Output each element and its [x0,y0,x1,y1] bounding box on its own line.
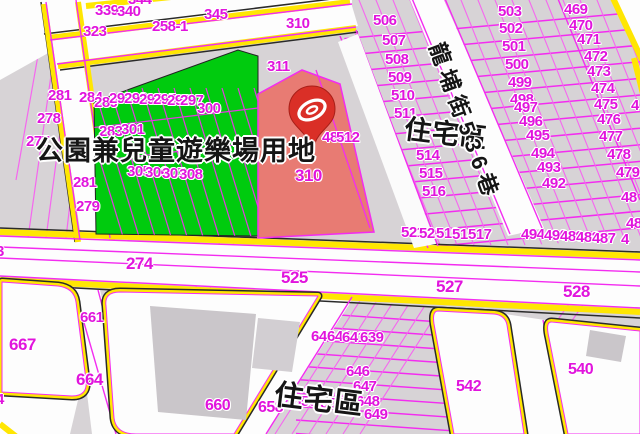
map-canvas[interactable]: 344339340345323258-131031128128427827728… [0,0,640,434]
cadastral-map [0,0,640,434]
